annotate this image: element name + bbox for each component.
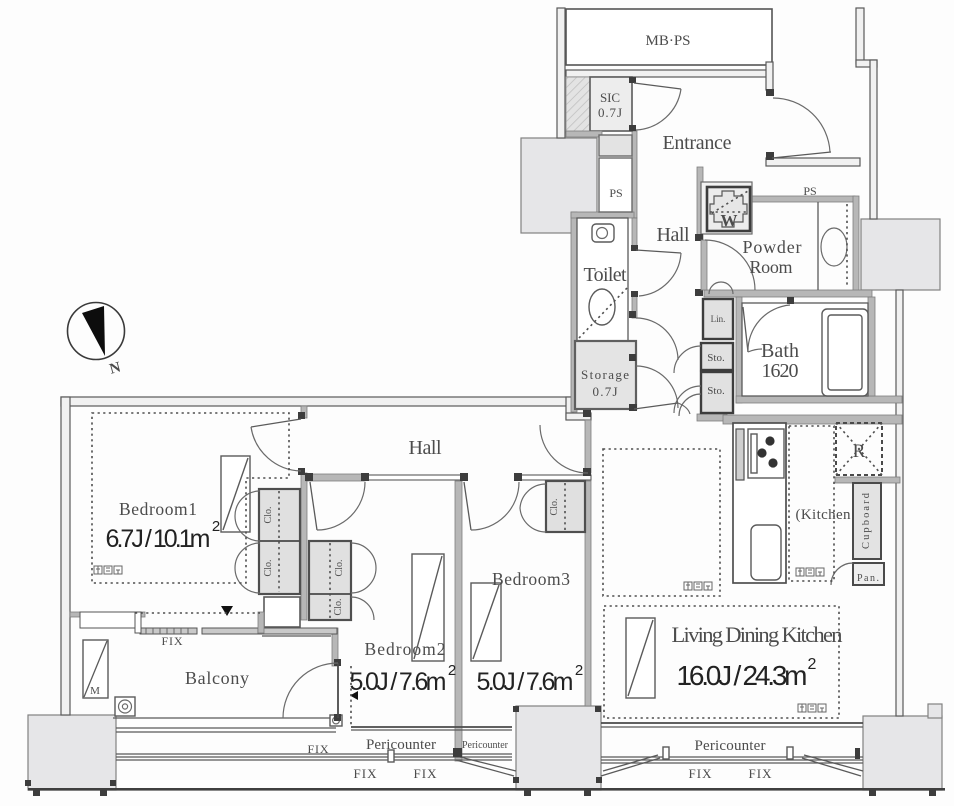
svg-text:Powder: Powder — [743, 237, 802, 257]
svg-text:2: 2 — [575, 662, 583, 679]
svg-text:Pericounter: Pericounter — [462, 740, 509, 751]
svg-text:Room: Room — [750, 257, 793, 277]
svg-text:Sto.: Sto. — [707, 385, 725, 397]
svg-text:(Kitchen: (Kitchen — [796, 507, 852, 523]
svg-text:R: R — [853, 441, 866, 462]
svg-text:Hall: Hall — [409, 437, 442, 459]
svg-text:FIX: FIX — [308, 742, 329, 756]
svg-text:MB·PS: MB·PS — [646, 33, 691, 49]
svg-text:FIX: FIX — [689, 766, 713, 781]
svg-text:FIX: FIX — [162, 634, 183, 648]
svg-text:0.7J: 0.7J — [593, 384, 618, 399]
svg-text:Living Dining Kitchen: Living Dining Kitchen — [672, 622, 843, 647]
svg-text:FIX: FIX — [749, 766, 773, 781]
svg-text:Entrance: Entrance — [663, 132, 732, 154]
svg-text:Sto.: Sto. — [707, 352, 725, 364]
svg-text:SIC: SIC — [600, 90, 620, 105]
svg-text:Balcony: Balcony — [185, 668, 249, 688]
svg-text:Clo.: Clo. — [549, 499, 560, 516]
svg-text:Toilet: Toilet — [584, 264, 627, 286]
svg-text:1620: 1620 — [762, 360, 799, 382]
svg-text:Bedroom3: Bedroom3 — [492, 569, 570, 589]
svg-text:Hall: Hall — [657, 224, 690, 246]
svg-text:Bath: Bath — [761, 340, 799, 362]
svg-text:2: 2 — [808, 656, 817, 673]
svg-text:Bedroom1: Bedroom1 — [119, 499, 197, 519]
svg-text:W: W — [721, 211, 738, 230]
svg-text:Bedroom2: Bedroom2 — [365, 639, 446, 659]
svg-text:Clo.: Clo. — [334, 560, 345, 577]
svg-text:PS: PS — [609, 186, 622, 200]
svg-text:2: 2 — [448, 662, 456, 679]
svg-text:Cupboard: Cupboard — [861, 492, 872, 549]
svg-text:6.7J / 10.1m: 6.7J / 10.1m — [106, 525, 211, 553]
svg-text:Clo.: Clo. — [263, 560, 274, 577]
svg-text:Pericounter: Pericounter — [366, 737, 436, 753]
svg-text:5.0J / 7.6m: 5.0J / 7.6m — [350, 668, 447, 696]
svg-text:Lin.: Lin. — [711, 314, 726, 324]
svg-text:M: M — [90, 685, 100, 697]
svg-text:Pericounter: Pericounter — [695, 738, 766, 754]
svg-text:2: 2 — [212, 518, 220, 535]
svg-text:Pan.: Pan. — [857, 573, 879, 584]
svg-text:FIX: FIX — [414, 766, 438, 781]
svg-text:0.7J: 0.7J — [598, 105, 622, 120]
svg-text:5.0J / 7.6m: 5.0J / 7.6m — [477, 668, 574, 696]
svg-text:Clo.: Clo. — [263, 507, 274, 524]
svg-text:Clo.: Clo. — [333, 599, 344, 616]
svg-text:FIX: FIX — [354, 766, 378, 781]
svg-text:PS: PS — [803, 184, 816, 198]
svg-text:16.0J / 24.3m: 16.0J / 24.3m — [677, 660, 808, 691]
